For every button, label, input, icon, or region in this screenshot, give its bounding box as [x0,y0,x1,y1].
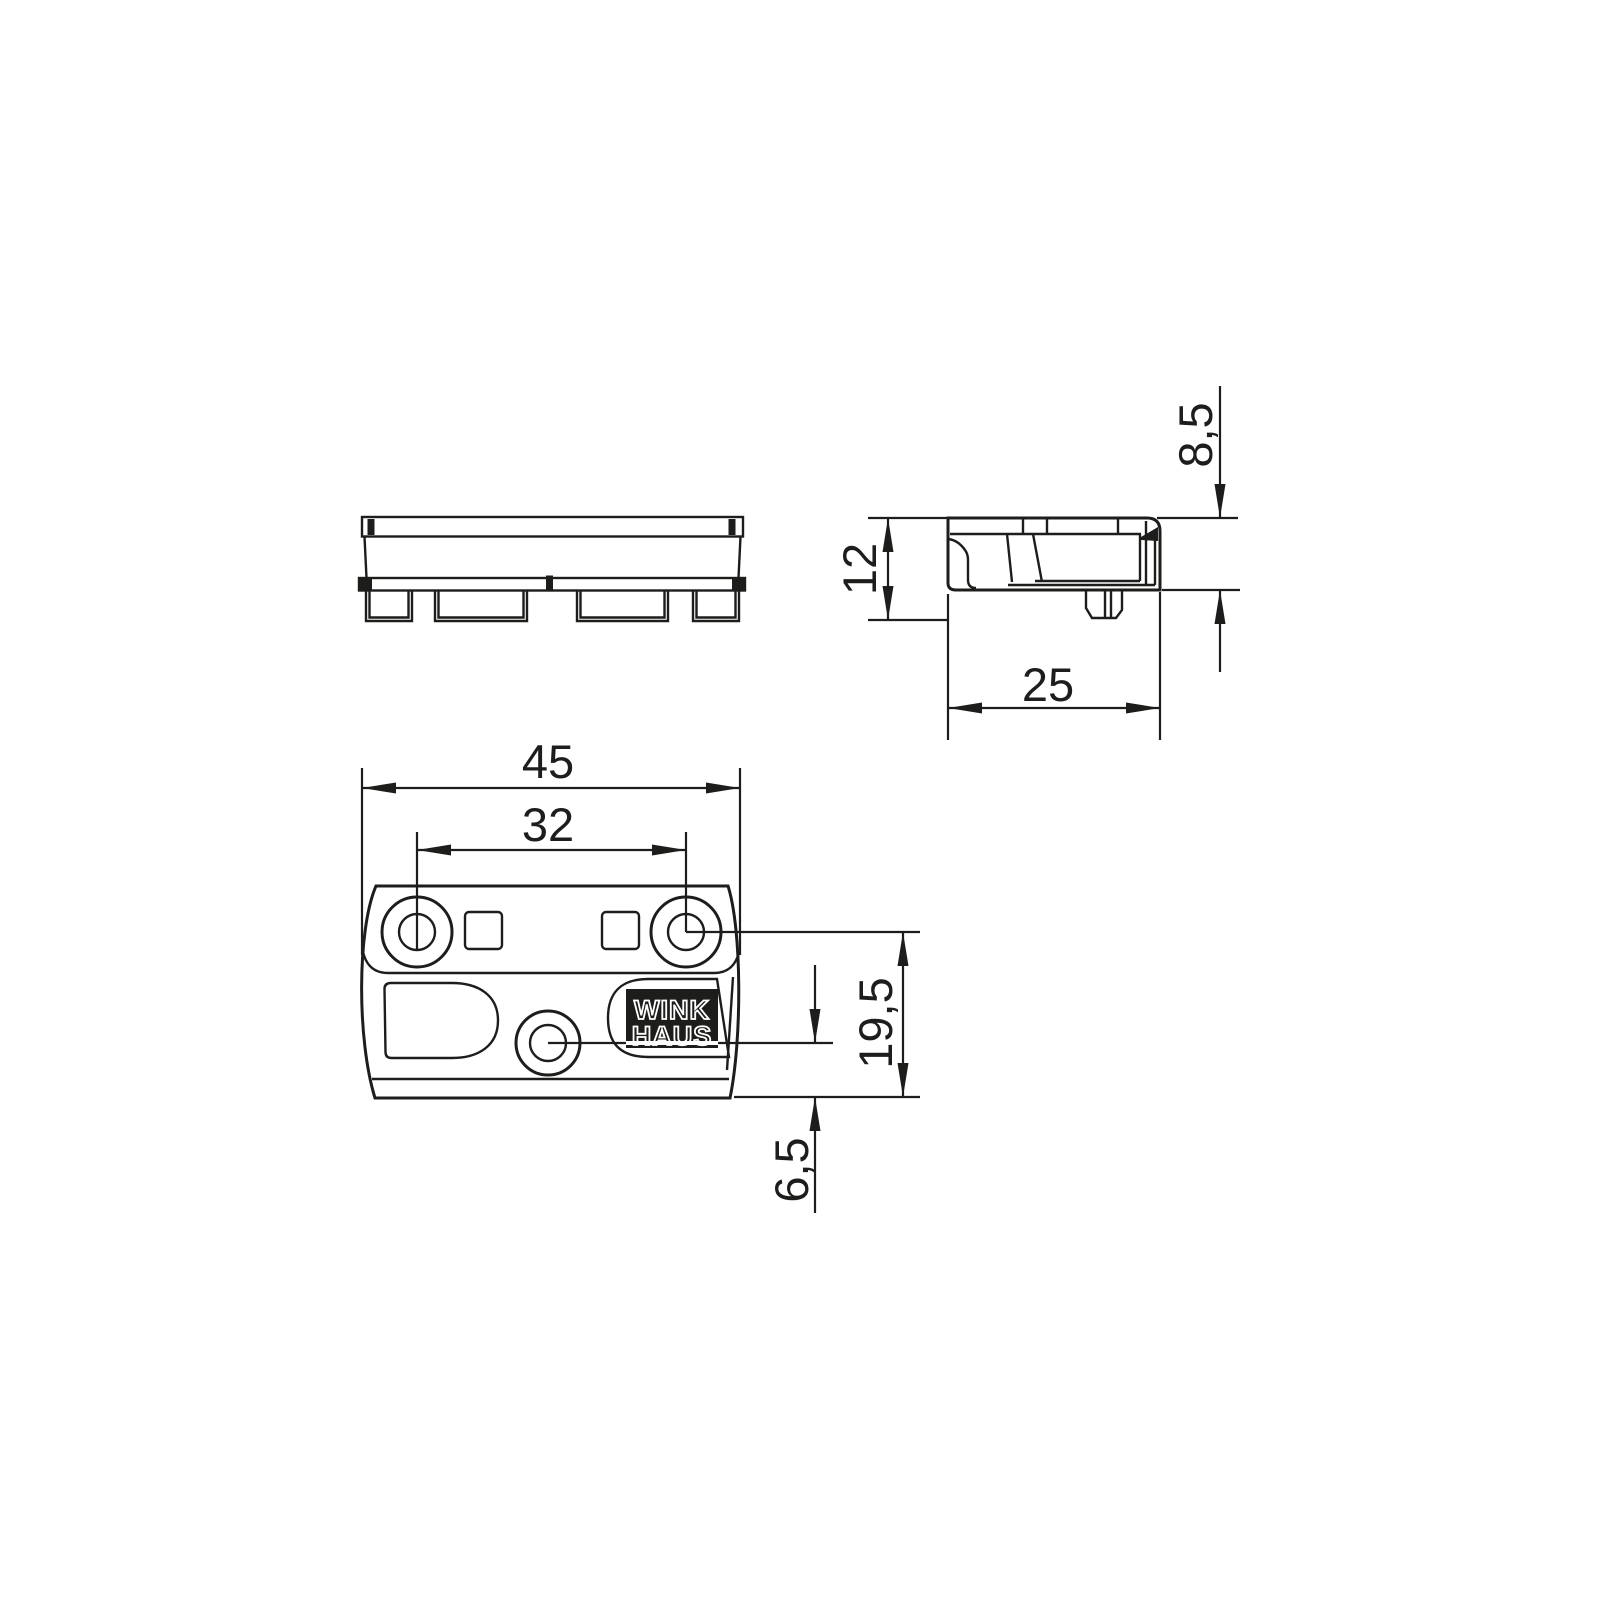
front-band-end-left [359,578,372,591]
front-foot-4-inner [697,590,736,618]
winkhaus-logo: WINK HAUS [608,979,729,1057]
dim-hole-to-bottom-label: 19,5 [849,977,902,1068]
front-view [359,517,745,621]
technical-drawing-page: 12 8,5 25 WINK HAUS [0,0,1600,1600]
logo-text-line2: HAUS [632,1021,713,1051]
square-opening-right [602,912,639,949]
dim-8-5-arrow-up [1215,590,1226,624]
side-beak [948,539,976,588]
side-view [948,518,1160,618]
dim-center-hole-to-bottom-6-5: 6,5 [765,965,821,1213]
dim-side-depth-25: 25 [948,592,1160,740]
plan-panel-line [363,952,739,973]
front-foot-1-inner [370,590,409,618]
dim-side-height-label: 12 [833,543,886,595]
dim-plan-width-label: 45 [522,735,574,788]
dim-45-extension-lines [362,768,740,955]
dim-side-height-12: 12 [833,518,948,620]
front-center-notch [546,576,553,591]
technical-drawing: 12 8,5 25 WINK HAUS [0,0,1600,1600]
dim-6-5-arrow-up [810,1097,821,1131]
dim-hole-to-bottom-19-5: 19,5 [686,932,920,1097]
side-cavity-bottom [1008,581,1155,585]
front-foot-3-inner [581,590,665,618]
dim-side-body-label: 8,5 [1169,402,1222,467]
dim-6-5-arrow-down [810,1009,821,1043]
dim-hole-spacing-label: 32 [522,798,574,851]
dim-19-5-arrow-up [898,932,909,966]
plan-left-slot [385,983,499,1058]
dim-side-body-8-5: 8,5 [1157,386,1240,672]
front-foot-2-inner [439,590,524,618]
side-tab-inner [1105,591,1111,617]
dim-45-arrow-left [362,783,396,794]
dim-25-arrow-right [1126,703,1160,714]
square-opening-left [465,912,502,949]
front-band-end-right [732,578,745,591]
dim-32-arrow-right [652,845,686,856]
side-outline [948,518,1160,590]
dim-25-arrow-left [948,703,982,714]
front-body-sides [365,537,741,579]
front-strip-notch-left [368,519,375,535]
front-top-strip [362,517,743,537]
front-strip-notch-right [729,519,736,535]
dim-32-arrow-left [417,845,451,856]
side-cavity-walls [1007,534,1042,582]
side-band-verticals [1023,518,1118,534]
dim-hole-spacing-32: 32 [417,798,686,950]
dim-8-5-extension-lines [1157,518,1240,590]
plan-view: WINK HAUS [362,886,833,1098]
dim-center-hole-to-bottom-label: 6,5 [765,1137,818,1202]
dim-8-5-arrow-down [1215,484,1226,518]
dim-side-depth-label: 25 [1022,658,1074,711]
side-corner-fill [1141,527,1158,541]
dim-45-arrow-right [706,783,740,794]
